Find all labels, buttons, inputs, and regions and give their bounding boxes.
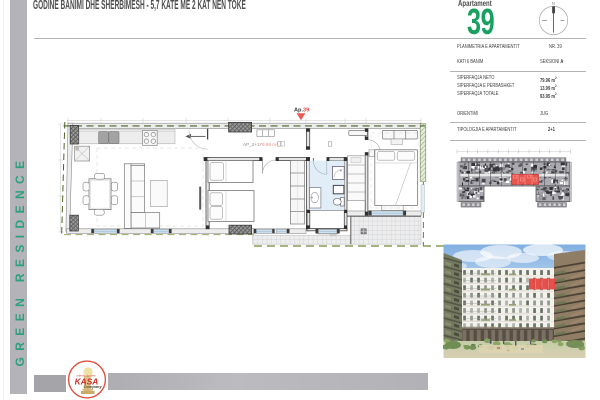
svg-text:N: N (552, 1, 555, 6)
svg-text:Ap.39: Ap.39 (294, 108, 309, 114)
svg-text:79.96 m²: 79.96 m² (260, 142, 279, 147)
svg-text:Company: Company (84, 384, 103, 389)
